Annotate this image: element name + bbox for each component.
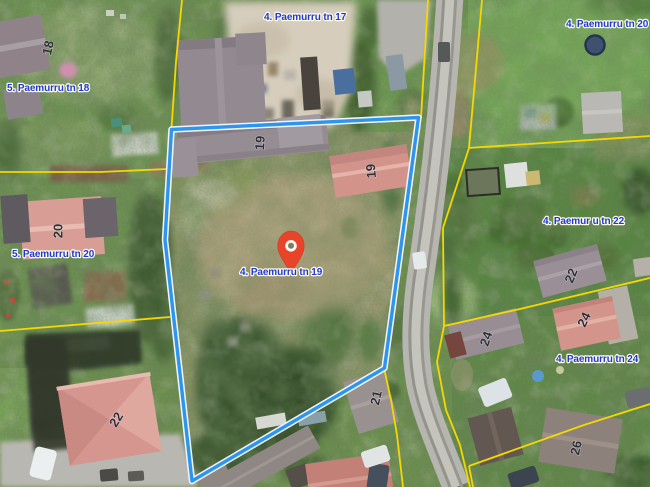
svg-text:4. Paemurru tn 20: 4. Paemurru tn 20 [566, 19, 649, 30]
svg-text:4. Paemurru tn 19: 4. Paemurru tn 19 [240, 267, 323, 278]
svg-text:5. Paemurru tn 20: 5. Paemurru tn 20 [12, 249, 95, 260]
svg-text:20: 20 [50, 224, 65, 238]
svg-text:4. Paemurru tn 24: 4. Paemurru tn 24 [556, 354, 639, 365]
svg-text:5. Paemurru tn 18: 5. Paemurru tn 18 [7, 83, 90, 94]
svg-text:21: 21 [367, 389, 385, 406]
svg-text:4. Paemurru tn 17: 4. Paemurru tn 17 [264, 12, 347, 23]
svg-text:19: 19 [363, 163, 379, 179]
svg-text:19: 19 [252, 135, 268, 150]
svg-text:18: 18 [39, 39, 57, 56]
svg-text:26: 26 [567, 439, 585, 456]
svg-text:4. Paemur u tn 22: 4. Paemur u tn 22 [543, 216, 625, 227]
